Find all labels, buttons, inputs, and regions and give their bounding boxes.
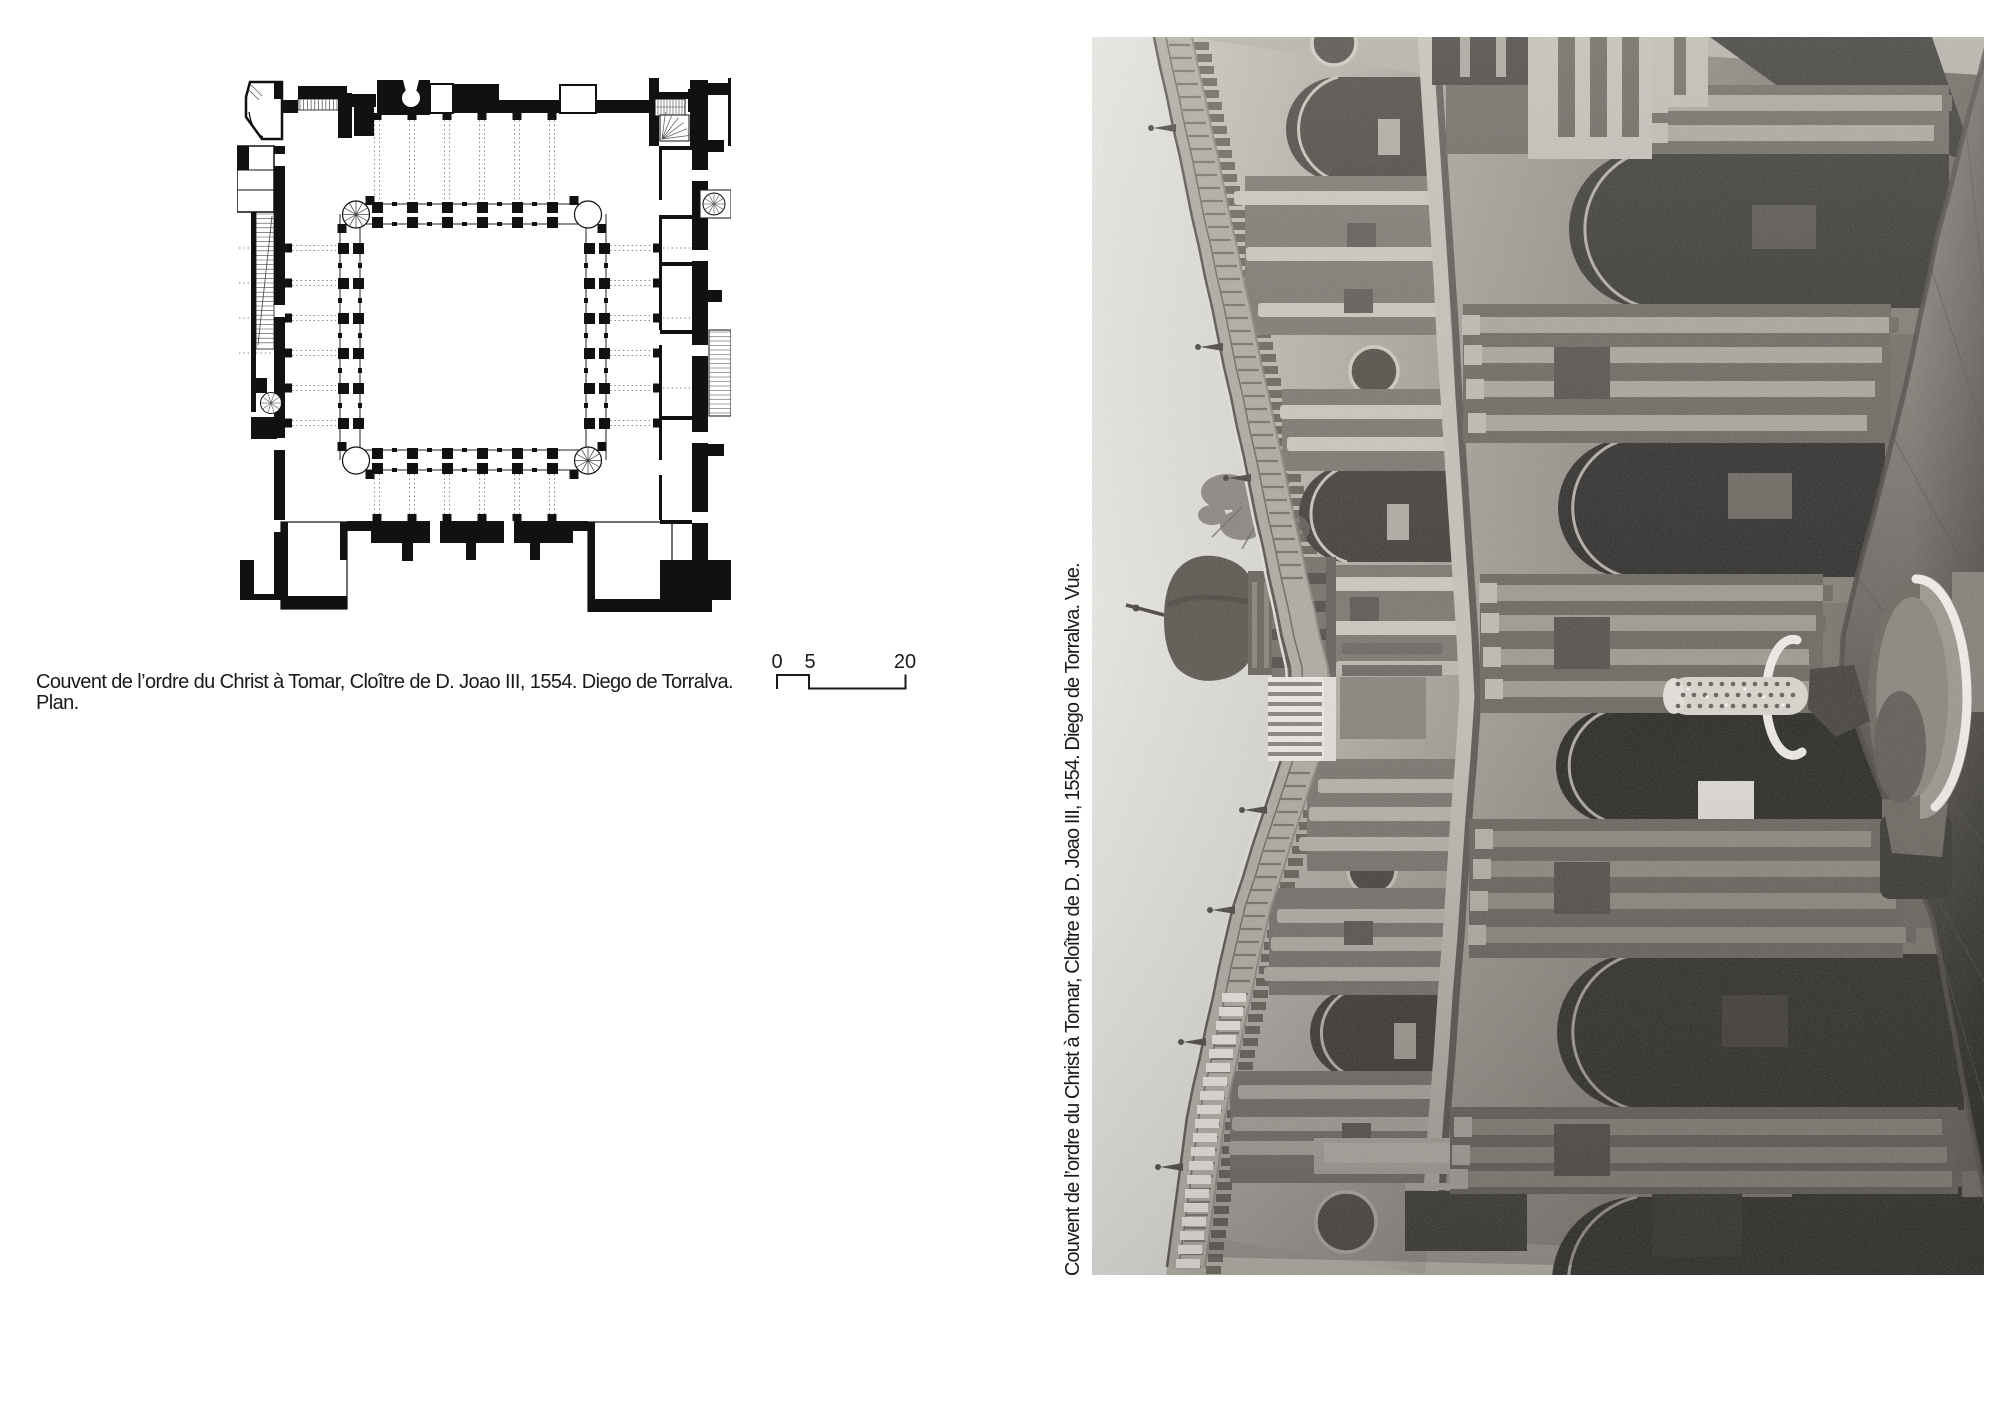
- svg-text:20: 20: [894, 651, 916, 673]
- svg-text:0: 0: [771, 651, 782, 673]
- svg-text:5: 5: [804, 651, 815, 673]
